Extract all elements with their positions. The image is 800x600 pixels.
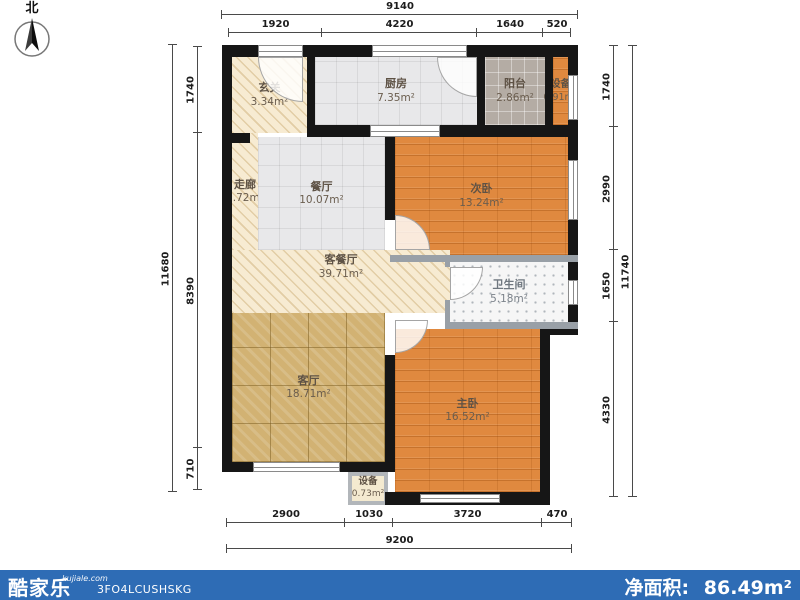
- dim-bottom-seg2: 1030: [345, 522, 393, 523]
- brand-site: kujiale.com: [62, 574, 108, 583]
- dim-left-seg1: 1740: [197, 47, 198, 133]
- window-equipment-right: [568, 75, 578, 120]
- dim-left-total: 11680: [172, 45, 173, 492]
- window-bedroom2-right: [568, 160, 578, 220]
- net-area-label: 净面积:: [625, 577, 690, 599]
- dim-bottom-seg3: 3720: [393, 522, 542, 523]
- wall-master-right: [540, 329, 550, 505]
- window-kitchen-dining: [370, 125, 440, 137]
- compass: 北: [8, 2, 56, 63]
- wall-mid-horizontal: [307, 125, 578, 137]
- floorplan-page: 北 9140 1920 4220 1640 520 2900 1030 3720…: [0, 0, 800, 600]
- dim-bottom-seg4: 470: [542, 522, 572, 523]
- dim-right-seg3: 1650: [613, 250, 614, 322]
- window-master-bottom: [420, 494, 500, 503]
- wall-bathroom-top: [390, 255, 578, 262]
- wall-entrance-kitchen: [307, 57, 315, 133]
- dim-left-seg3: 710: [197, 448, 198, 490]
- wall-inner-upper: [385, 137, 395, 220]
- window-kitchen-top: [372, 45, 467, 57]
- room-master-bedroom: 主卧16.52m²: [395, 329, 540, 492]
- dim-top-seg1: 1920: [229, 32, 322, 33]
- plan-code: 3FO4LCUSHSKG: [97, 583, 192, 596]
- dim-right-seg1: 1740: [613, 46, 614, 127]
- wall-balcony-equipment: [545, 57, 553, 125]
- room-corridor: 走廊7.72m²: [232, 133, 258, 250]
- wall-left: [222, 45, 232, 472]
- window-entrance-top: [258, 45, 303, 57]
- compass-north-label: 北: [8, 2, 56, 15]
- window-living-bottom: [253, 462, 340, 472]
- room-equipment-top: 设备0.91m²: [553, 57, 568, 125]
- wall-entrance-stub: [232, 133, 250, 143]
- window-bathroom-right: [568, 280, 578, 305]
- net-area-value: 86.49m²: [704, 577, 792, 599]
- net-area: 净面积: 86.49m²: [625, 573, 792, 600]
- dim-top-total: 9140: [222, 14, 578, 15]
- dim-right-total: 11740: [632, 46, 633, 497]
- room-dining: 餐厅10.07m²: [258, 137, 385, 250]
- dim-bottom-seg1: 2900: [227, 522, 345, 523]
- dim-left-seg2: 8390: [197, 133, 198, 448]
- room-equipment-bottom: 设备0.73m²: [348, 472, 388, 505]
- wall-bathroom-left-upper: [445, 255, 450, 267]
- room-living: 客厅18.71m²: [232, 313, 385, 462]
- dim-right-seg2: 2990: [613, 127, 614, 250]
- compass-icon: [10, 15, 54, 59]
- room-balcony: 阳台2.86m²: [485, 57, 545, 125]
- dim-top-seg3: 1640: [477, 32, 543, 33]
- dim-right-seg4: 4330: [613, 322, 614, 497]
- wall-bathroom-bottom: [445, 322, 578, 329]
- wall-kitchen-balcony: [477, 57, 485, 125]
- dim-top-seg2: 4220: [322, 32, 477, 33]
- dim-top-seg4: 520: [543, 32, 571, 33]
- floorplan: 玄关3.34m² 厨房7.35m² 阳台2.86m² 设备0.91m² 走廊7.…: [222, 45, 578, 505]
- dim-bottom-total: 9200: [227, 548, 572, 549]
- footer-bar: 酷家乐 kujiale.com 3FO4LCUSHSKG 净面积: 86.49m…: [0, 570, 800, 600]
- wall-inner-lower: [385, 355, 395, 462]
